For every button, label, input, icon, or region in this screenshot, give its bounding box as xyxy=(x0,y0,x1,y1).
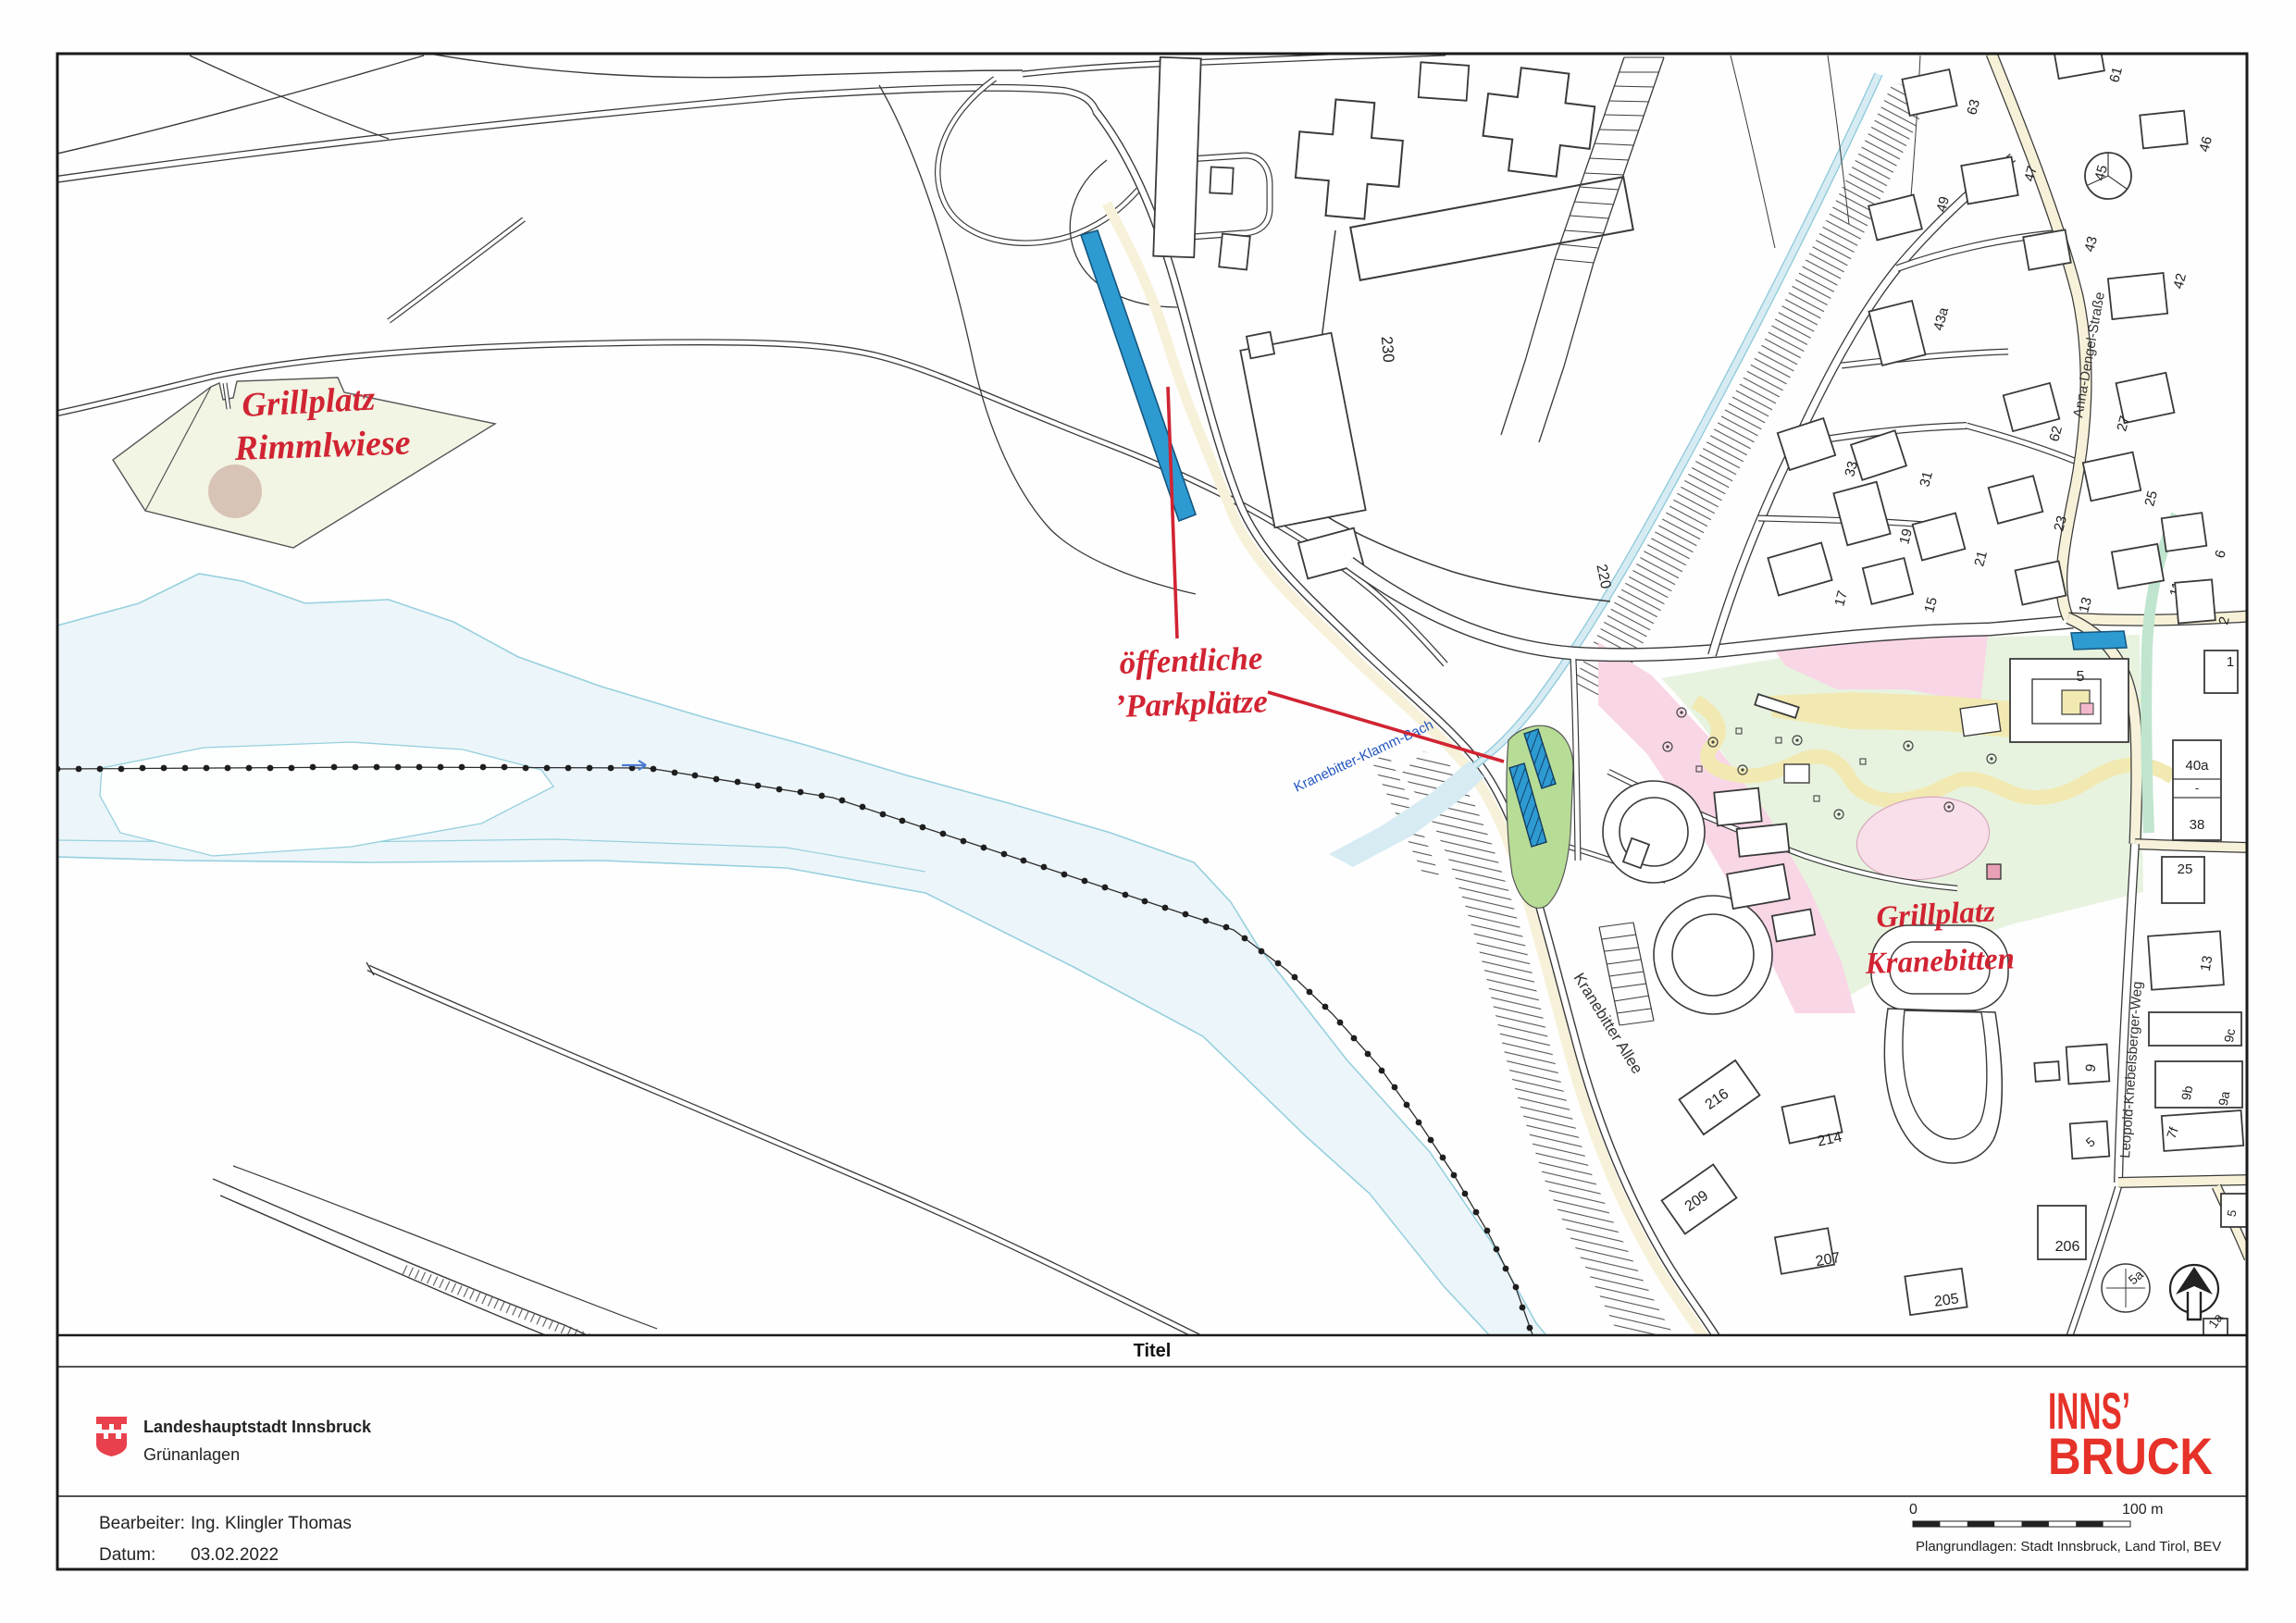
svg-text:Grillplatz: Grillplatz xyxy=(1876,895,1996,935)
svg-text:’Parkplätze: ’Parkplätze xyxy=(1114,683,1269,725)
svg-text:25: 25 xyxy=(2178,861,2193,877)
svg-text:1: 1 xyxy=(2227,654,2234,670)
svg-text:100 m: 100 m xyxy=(2122,1502,2163,1518)
svg-text:öffentliche: öffentliche xyxy=(1119,640,1263,681)
svg-text:03.02.2022: 03.02.2022 xyxy=(191,1545,279,1565)
svg-text:Ing. Klingler Thomas: Ing. Klingler Thomas xyxy=(191,1514,352,1533)
svg-text:Kranebitten: Kranebitten xyxy=(1864,942,2016,981)
svg-text:Plangrundlagen: Stadt Innsbruc: Plangrundlagen: Stadt Innsbruck, Land Ti… xyxy=(1916,1539,2221,1555)
svg-text:230: 230 xyxy=(1378,336,1397,364)
svg-text:9a: 9a xyxy=(2215,1090,2232,1107)
svg-text:5: 5 xyxy=(2077,669,2085,685)
svg-text:40a: 40a xyxy=(2185,758,2209,774)
svg-text:Landeshauptstadt Innsbruck: Landeshauptstadt Innsbruck xyxy=(143,1418,372,1436)
svg-text:Titel: Titel xyxy=(1134,1341,1172,1361)
svg-text:0: 0 xyxy=(1909,1502,1917,1518)
svg-text:Bearbeiter:: Bearbeiter: xyxy=(99,1514,185,1533)
svg-text:9c: 9c xyxy=(2221,1027,2238,1043)
svg-text:Rimmlwiese: Rimmlwiese xyxy=(233,423,411,468)
svg-text:Datum:: Datum: xyxy=(99,1545,155,1565)
svg-text:-: - xyxy=(2195,781,2199,795)
svg-text:Grünanlagen: Grünanlagen xyxy=(143,1445,240,1464)
svg-text:Grillplatz: Grillplatz xyxy=(241,379,376,425)
svg-text:13: 13 xyxy=(2198,955,2216,973)
svg-text:9b: 9b xyxy=(2178,1084,2195,1101)
svg-text:38: 38 xyxy=(2190,817,2205,833)
svg-text:206: 206 xyxy=(2055,1239,2080,1255)
svg-text:BRUCK: BRUCK xyxy=(2048,1427,2213,1485)
